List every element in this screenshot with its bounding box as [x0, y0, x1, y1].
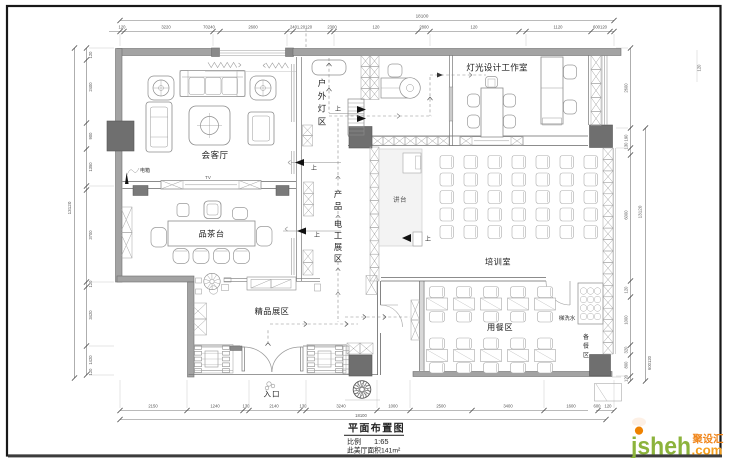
svg-text:区: 区	[334, 254, 342, 264]
svg-text:.com: .com	[692, 443, 723, 458]
svg-text:120: 120	[623, 286, 628, 294]
svg-text:13120: 13120	[638, 205, 643, 218]
svg-text:120: 120	[373, 24, 381, 29]
svg-text:入口: 入口	[264, 390, 281, 399]
svg-text:精品展区: 精品展区	[255, 306, 290, 316]
svg-text:120: 120	[697, 64, 702, 72]
svg-text:灯光设计工作室: 灯光设计工作室	[466, 62, 528, 73]
svg-text:培训室: 培训室	[485, 257, 511, 267]
svg-text:800: 800	[623, 361, 628, 369]
svg-text:18100: 18100	[355, 413, 367, 418]
svg-text:1420: 1420	[88, 355, 93, 365]
svg-text:2401,20120: 2401,20120	[290, 24, 313, 29]
svg-text:2300: 2300	[327, 24, 337, 29]
svg-text:3220: 3220	[161, 24, 171, 29]
svg-text:120: 120	[88, 51, 93, 59]
svg-text:品茶台: 品茶台	[198, 229, 224, 239]
svg-text:6000: 6000	[623, 210, 628, 220]
svg-text:600120: 600120	[593, 24, 608, 29]
svg-text:备: 备	[583, 333, 589, 341]
svg-text:120: 120	[471, 24, 479, 29]
svg-text:1000: 1000	[388, 404, 398, 409]
svg-text:用餐区: 用餐区	[487, 323, 513, 332]
svg-text:上: 上	[335, 105, 341, 113]
svg-text:区: 区	[318, 116, 327, 126]
svg-text:3700: 3700	[88, 230, 93, 240]
svg-text:上: 上	[314, 231, 320, 239]
svg-text:130: 130	[623, 142, 628, 150]
svg-text:120: 120	[88, 280, 93, 288]
svg-text:13120: 13120	[67, 201, 72, 214]
svg-text:18100: 18100	[416, 14, 429, 19]
svg-text:600: 600	[594, 404, 602, 409]
svg-text:展: 展	[334, 242, 342, 252]
svg-text:1000: 1000	[623, 315, 628, 325]
svg-text:70240: 70240	[203, 24, 215, 29]
svg-text:2150: 2150	[148, 404, 158, 409]
svg-text:梯洗水: 梯洗水	[559, 314, 576, 322]
svg-text:2400: 2400	[88, 82, 93, 92]
svg-text:120: 120	[623, 374, 628, 382]
svg-text:1:65: 1:65	[374, 437, 389, 446]
svg-text:电: 电	[334, 219, 342, 229]
svg-text:TV: TV	[205, 175, 211, 180]
svg-text:工: 工	[334, 231, 342, 241]
svg-text:上: 上	[425, 235, 431, 243]
svg-text:上: 上	[311, 164, 317, 172]
svg-text:餐: 餐	[583, 342, 589, 350]
svg-text:1350: 1350	[88, 162, 93, 172]
svg-text:平面布置图: 平面布置图	[348, 422, 405, 435]
svg-text:讲台: 讲台	[393, 195, 407, 204]
svg-text:3240: 3240	[336, 404, 346, 409]
svg-text:品: 品	[334, 201, 342, 211]
svg-text:jsheh: jsheh	[630, 433, 691, 459]
svg-text:电箱: 电箱	[140, 167, 150, 174]
svg-text:1240: 1240	[210, 404, 220, 409]
svg-text:320: 320	[623, 346, 628, 354]
svg-text:2600: 2600	[248, 24, 258, 29]
svg-text:比例: 比例	[347, 437, 361, 446]
svg-text:2500: 2500	[436, 404, 446, 409]
svg-text:120: 120	[88, 368, 93, 376]
svg-text:2140: 2140	[269, 404, 279, 409]
svg-text:1120: 1120	[553, 24, 563, 29]
svg-text:120: 120	[119, 24, 127, 29]
svg-text:900: 900	[88, 132, 93, 140]
svg-text:120: 120	[605, 404, 613, 409]
svg-text:产: 产	[334, 189, 342, 199]
svg-text:3400: 3400	[503, 404, 513, 409]
svg-text:灯: 灯	[318, 104, 327, 114]
svg-text:此美厅面积141m²: 此美厅面积141m²	[347, 445, 401, 454]
svg-text:1600: 1600	[566, 404, 576, 409]
svg-text:会客厅: 会客厅	[202, 149, 229, 160]
svg-text:600120: 600120	[647, 355, 652, 370]
svg-text:2600: 2600	[623, 83, 628, 93]
svg-text:区: 区	[583, 352, 589, 359]
svg-text:2800: 2800	[419, 24, 429, 29]
svg-text:190: 190	[623, 134, 628, 142]
svg-text:外: 外	[318, 91, 327, 101]
svg-text:3420: 3420	[88, 310, 93, 320]
svg-text:户: 户	[318, 78, 327, 88]
